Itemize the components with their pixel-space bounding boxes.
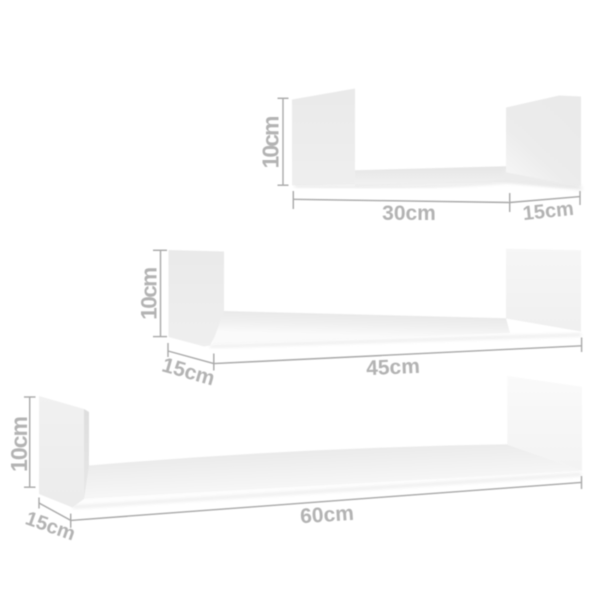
svg-text:10cm: 10cm: [137, 267, 162, 320]
svg-text:10cm: 10cm: [258, 116, 284, 169]
svg-text:60cm: 60cm: [299, 502, 354, 528]
svg-text:10cm: 10cm: [6, 416, 32, 472]
svg-text:30cm: 30cm: [382, 202, 436, 225]
svg-text:45cm: 45cm: [366, 355, 421, 380]
